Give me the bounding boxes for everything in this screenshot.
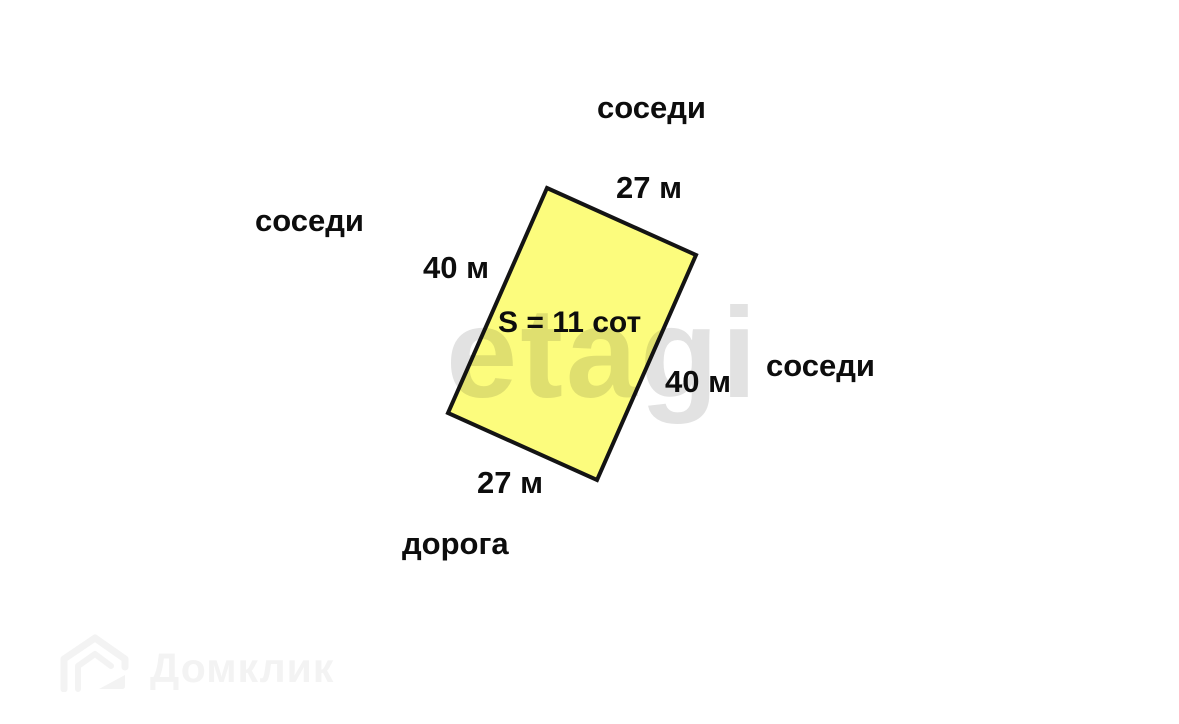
label-road: дорога [402, 526, 509, 562]
brand-logo-text: Домклик [150, 648, 334, 689]
house-icon [52, 634, 136, 692]
label-side-right-40m: 40 м [665, 364, 731, 400]
label-area: S = 11 сот [498, 306, 641, 341]
label-neighbors-top: соседи [597, 90, 706, 126]
label-side-left-40m: 40 м [423, 250, 489, 286]
label-side-top-27m: 27 м [616, 170, 682, 206]
plot-scheme-image: etagi соседи соседи соседи дорога 27 м 4… [0, 0, 1179, 724]
label-side-bottom-27m: 27 м [477, 465, 543, 501]
label-neighbors-left: соседи [255, 203, 364, 239]
label-neighbors-right: соседи [766, 348, 875, 384]
brand-logo: Домклик [52, 634, 334, 692]
